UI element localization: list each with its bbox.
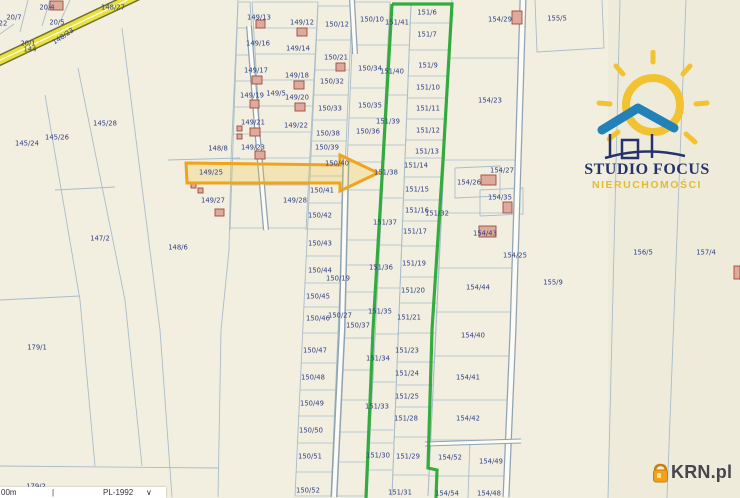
parcel-label: 150/12 xyxy=(325,20,349,28)
parcel-label: 150/43 xyxy=(308,239,332,247)
parcel-label: 157/4 xyxy=(696,248,716,256)
parcel-label: 149/22 xyxy=(284,121,308,129)
building-footprint xyxy=(734,266,740,279)
parcel-label: 20/7 xyxy=(6,13,21,21)
parcel-label: 149/13 xyxy=(247,13,271,21)
parcel-label: 154/41 xyxy=(456,373,480,381)
parcel-label: 155/9 xyxy=(543,278,563,286)
parcel-label: 150/34 xyxy=(358,64,382,72)
parcel-label: 151/41 xyxy=(385,18,409,26)
building-footprint xyxy=(255,151,265,159)
building-footprint xyxy=(237,126,242,131)
parcel-label: 154/25 xyxy=(503,251,527,259)
parcel-label: 151/14 xyxy=(404,161,428,169)
parcel-label: 149/12 xyxy=(290,18,314,26)
parcel-label: 150/32 xyxy=(320,77,344,85)
parcel-label: 154/44 xyxy=(466,283,490,291)
parcel-label: 145/24 xyxy=(15,139,39,147)
parcel-label: 151/13 xyxy=(415,147,439,155)
parcel-label: 154/35 xyxy=(488,193,512,201)
parcel-label: 151/30 xyxy=(366,451,390,459)
parcel-label: 150/41 xyxy=(310,186,334,194)
parcel-label: 145/28 xyxy=(93,119,117,127)
parcel-label: 150/46 xyxy=(306,314,330,322)
parcel-label: 149/5 xyxy=(266,89,286,97)
parcel-label: 149/27 xyxy=(201,196,225,204)
parcel-label: 151/34 xyxy=(366,354,390,362)
parcel-label: 154/54 xyxy=(435,489,459,497)
parcel-label: 151/36 xyxy=(369,263,393,271)
parcel-label: 179/1 xyxy=(27,343,47,351)
parcel-label: 150/19 xyxy=(326,274,350,282)
scale-tick: | xyxy=(52,488,54,497)
parcel-label: 149/18 xyxy=(285,71,309,79)
parcel-label: 151/20 xyxy=(401,286,425,294)
parcel-label: 149/28 xyxy=(283,196,307,204)
parcel-label: 151/31 xyxy=(388,488,412,496)
building-footprint xyxy=(198,188,203,193)
parcel-label: 150/38 xyxy=(316,129,340,137)
parcel-label: 150/36 xyxy=(356,127,380,135)
parcel-label: 148/6 xyxy=(168,243,188,251)
parcel-label: 150/37 xyxy=(346,321,370,329)
krn-house-icon xyxy=(652,462,669,483)
parcel-label: 151/12 xyxy=(416,126,440,134)
parcel-label: 151/9 xyxy=(418,61,438,69)
map-scalebar: 00m | PL-1992 ∨ xyxy=(0,487,166,498)
building-footprint xyxy=(294,81,304,89)
cadastral-map: 2220/420/720/520/1144148/27145/28145/261… xyxy=(0,0,740,498)
parcel-label: 20/4 xyxy=(39,3,54,11)
parcel-label: 151/7 xyxy=(417,30,437,38)
parcel-label: 150/49 xyxy=(300,399,324,407)
parcel-label: 149/19 xyxy=(240,91,264,99)
parcel-label: 154/43 xyxy=(473,229,497,237)
parcel-label: 149/25 xyxy=(199,168,223,176)
parcel-label: 150/44 xyxy=(308,266,332,274)
parcel-label: 151/28 xyxy=(394,414,418,422)
parcel-label: 144 xyxy=(24,45,37,53)
parcel-label: 151/23 xyxy=(395,346,419,354)
parcel-label: 150/45 xyxy=(306,292,330,300)
parcel-label: 149/14 xyxy=(286,44,310,52)
parcel-label: 149/20 xyxy=(285,93,309,101)
parcel-label: 154/27 xyxy=(490,166,514,174)
parcel-label: 151/21 xyxy=(397,313,421,321)
listing-map-image: 2220/420/720/520/1144148/27145/28145/261… xyxy=(0,0,740,498)
parcel-label: 150/48 xyxy=(301,373,325,381)
parcel-label: 151/6 xyxy=(417,8,437,16)
parcel-label: 151/33 xyxy=(365,402,389,410)
parcel-label: 150/35 xyxy=(358,101,382,109)
building-footprint xyxy=(237,134,242,139)
building-footprint xyxy=(252,76,262,84)
parcel-label: 150/27 xyxy=(328,311,352,319)
parcel-label: 148/8 xyxy=(208,144,228,152)
parcel-label: 154/40 xyxy=(461,331,485,339)
building-footprint xyxy=(503,202,512,213)
parcel-label: 155/5 xyxy=(547,14,567,22)
krn-logo: KRN.pl xyxy=(652,462,732,483)
parcel-label: 150/21 xyxy=(324,53,348,61)
parcel-label: 151/37 xyxy=(373,218,397,226)
building-footprint xyxy=(250,100,259,108)
parcel-label: 151/35 xyxy=(368,307,392,315)
parcel-label: 150/39 xyxy=(315,143,339,151)
parcel-label: 149/23 xyxy=(241,143,265,151)
parcel-label: 151/39 xyxy=(376,117,400,125)
parcel-label: 150/52 xyxy=(296,486,320,494)
parcel-label: 150/51 xyxy=(298,452,322,460)
parcel-label: 148/27 xyxy=(101,3,125,11)
building-footprint xyxy=(295,103,305,111)
building-footprint xyxy=(297,28,307,36)
parcel-label: 150/47 xyxy=(303,346,327,354)
parcel-label: 150/50 xyxy=(299,426,323,434)
parcel-label: 154/29 xyxy=(488,15,512,23)
parcel-label: 151/15 xyxy=(405,185,429,193)
parcel-label: 151/32 xyxy=(425,209,449,217)
parcel-label: 150/42 xyxy=(308,211,332,219)
chevron-down-icon[interactable]: ∨ xyxy=(146,488,152,497)
parcel-label: 154/52 xyxy=(438,453,462,461)
parcel-label: 147/2 xyxy=(90,234,110,242)
parcel-label: 151/29 xyxy=(396,452,420,460)
parcel-label: 154/42 xyxy=(456,414,480,422)
building-footprint xyxy=(336,63,345,71)
parcel-label: 151/17 xyxy=(403,227,427,235)
parcel-label: 156/5 xyxy=(633,248,653,256)
parcel-label: 150/33 xyxy=(318,104,342,112)
parcel-label: 149/21 xyxy=(241,118,265,126)
building-footprint xyxy=(481,175,496,185)
parcel-label: 154/23 xyxy=(478,96,502,104)
crs-selector[interactable]: PL-1992 xyxy=(103,488,133,497)
parcel-label: 154/48 xyxy=(477,489,501,497)
parcel-label: 151/38 xyxy=(374,168,398,176)
parcel-label: 150/40 xyxy=(325,159,349,167)
parcel-label: 151/25 xyxy=(395,392,419,400)
map-background-right xyxy=(608,0,740,498)
parcel-label: 150/10 xyxy=(360,15,384,23)
parcel-label: 154/26 xyxy=(457,178,481,186)
parcel-label: 20/5 xyxy=(49,18,64,26)
krn-logo-text: KRN.pl xyxy=(671,462,732,483)
parcel-label: 145/26 xyxy=(45,133,69,141)
parcel-label: 154/49 xyxy=(479,457,503,465)
building-footprint xyxy=(250,128,260,136)
parcel-label: 151/24 xyxy=(395,369,419,377)
parcel-label: 151/11 xyxy=(416,104,440,112)
parcel-label: 149/17 xyxy=(244,66,268,74)
parcel-label: 151/19 xyxy=(402,259,426,267)
parcel-label: 151/40 xyxy=(380,67,404,75)
parcel-label: 151/10 xyxy=(416,83,440,91)
parcel-label: 149/16 xyxy=(246,39,270,47)
building-footprint xyxy=(512,11,522,24)
scale-distance-label: 00m xyxy=(1,488,17,497)
building-footprint xyxy=(215,209,224,216)
